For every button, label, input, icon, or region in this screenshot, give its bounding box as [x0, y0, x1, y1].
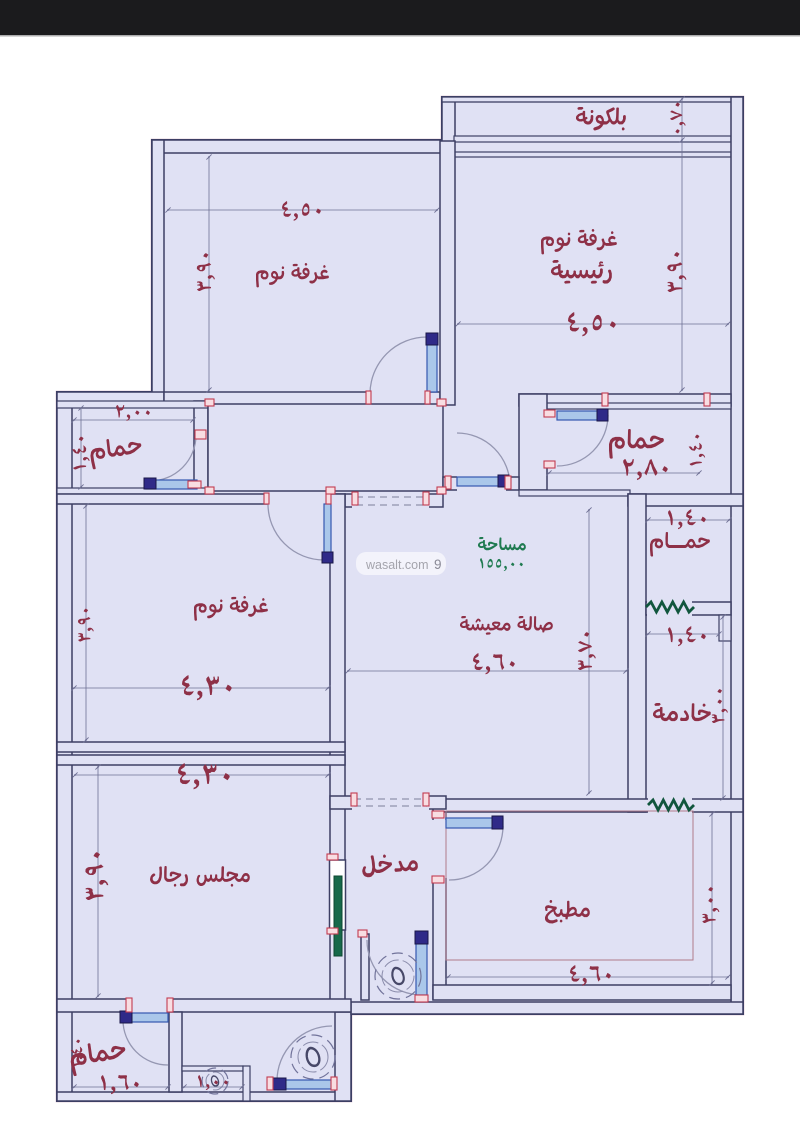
svg-text:wasalt.com: wasalt.com [365, 558, 429, 572]
svg-text:9: 9 [434, 557, 442, 572]
